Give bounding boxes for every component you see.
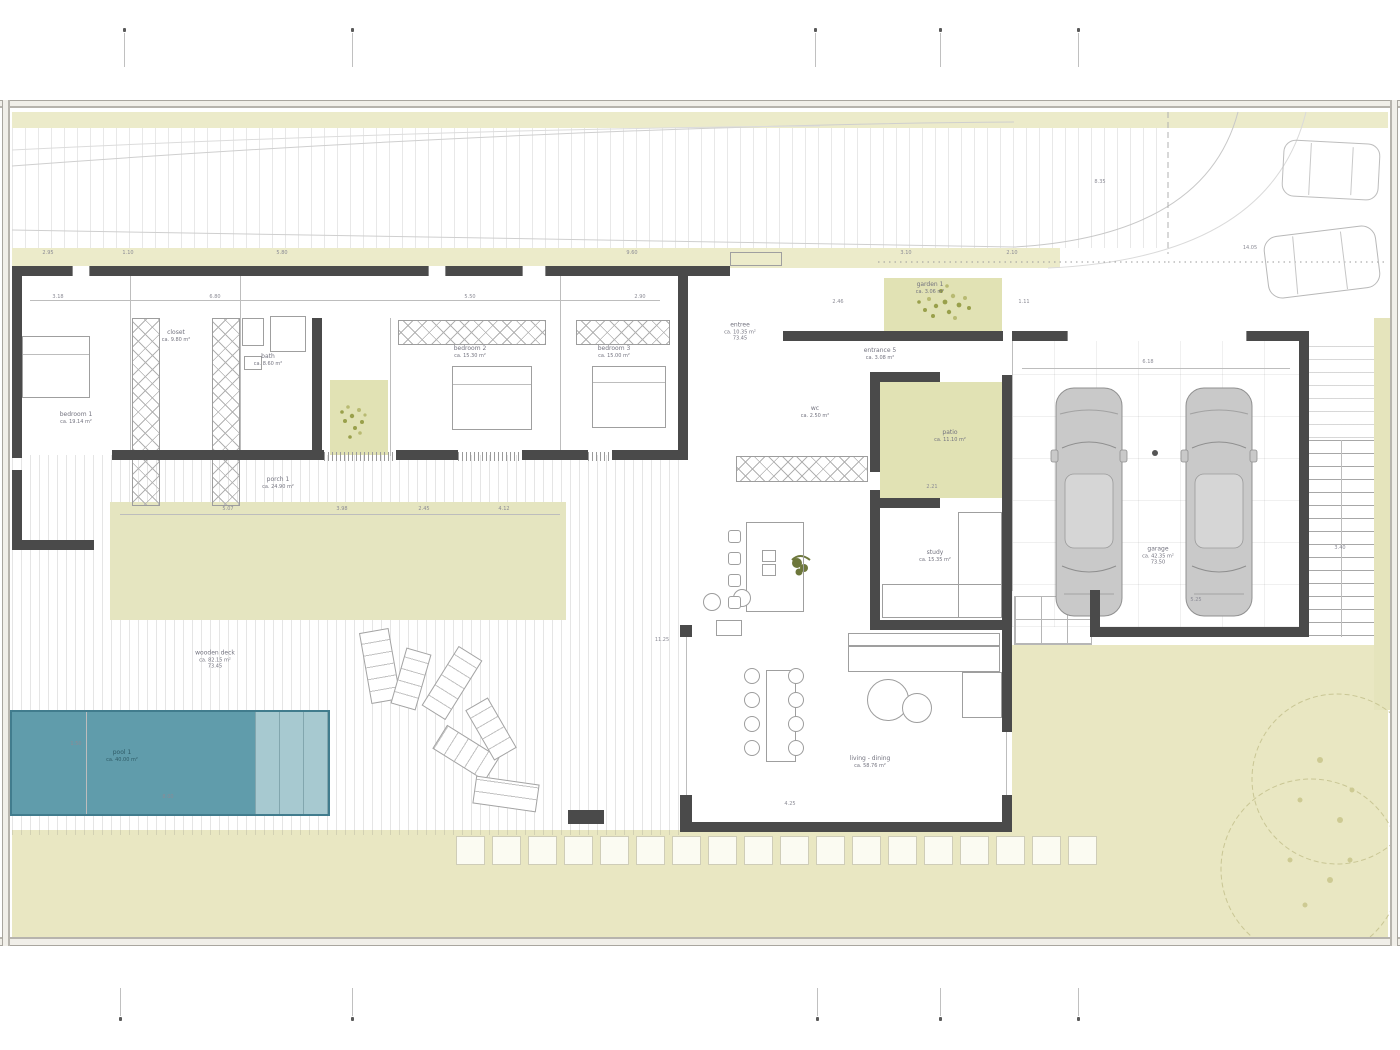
dining-chair bbox=[744, 740, 760, 756]
stepping-stone bbox=[600, 836, 629, 865]
dimension-text: 1.11 bbox=[1018, 299, 1029, 305]
dining-chair bbox=[788, 716, 804, 732]
stepping-stone bbox=[672, 836, 701, 865]
round-furniture bbox=[902, 693, 932, 723]
stepping-stone bbox=[816, 836, 845, 865]
dimension-text: 11.25 bbox=[655, 637, 669, 643]
cabinet-unit bbox=[736, 456, 868, 482]
room-label-closet: closetca. 9.80 m² bbox=[162, 329, 191, 343]
sheet-border-right bbox=[1390, 100, 1398, 946]
dimension-text: 3.18 bbox=[52, 294, 63, 300]
room-label-entrance: entrance 5ca. 3.08 m² bbox=[864, 347, 897, 361]
stepping-stone bbox=[852, 836, 881, 865]
stepping-stone bbox=[996, 836, 1025, 865]
room-label-line: ca. 9.80 m² bbox=[162, 337, 191, 344]
dining-chair bbox=[788, 692, 804, 708]
window-sill bbox=[458, 452, 522, 461]
survey-marker-dot bbox=[123, 28, 126, 32]
partition-line bbox=[30, 300, 660, 301]
wall-segment bbox=[870, 620, 1012, 630]
furniture-outline bbox=[962, 672, 1002, 718]
green-strip-east bbox=[1374, 318, 1390, 710]
survey-marker-dot bbox=[351, 1017, 354, 1021]
wall-segment bbox=[12, 266, 22, 458]
dimension-text: 5.80 bbox=[276, 250, 287, 256]
room-label-line: ca. 15.00 m² bbox=[598, 353, 631, 360]
room-label-line: bedroom 2 bbox=[454, 345, 487, 352]
wall-segment bbox=[1090, 590, 1100, 635]
dining-chair bbox=[788, 740, 804, 756]
lawn-east bbox=[1012, 645, 1388, 830]
partition-line bbox=[120, 514, 560, 515]
furniture-outline bbox=[452, 366, 532, 430]
survey-marker-stem bbox=[815, 33, 816, 67]
room-label-line: wc bbox=[811, 405, 819, 412]
stepping-stone bbox=[636, 836, 665, 865]
wall-segment bbox=[680, 625, 692, 637]
room-label-line: 73.45 bbox=[195, 664, 235, 671]
survey-marker-stem bbox=[1078, 33, 1079, 67]
survey-marker-dot bbox=[816, 1017, 819, 1021]
room-label-line: ca. 11.10 m² bbox=[934, 437, 966, 444]
dimension-text: 1.50 bbox=[70, 741, 81, 747]
wall-segment bbox=[1299, 331, 1309, 637]
dimension-text: 5.07 bbox=[222, 506, 233, 512]
sheet-border-left bbox=[2, 100, 10, 946]
sheet-border-top bbox=[0, 100, 1400, 108]
room-label-line: 73.50 bbox=[1142, 560, 1174, 567]
furniture-outline bbox=[730, 252, 782, 266]
room-label-study: studyca. 15.35 m² bbox=[919, 549, 951, 563]
partition-line bbox=[86, 712, 87, 814]
furniture-outline bbox=[592, 366, 666, 428]
partition-line bbox=[1341, 440, 1342, 637]
room-label-line: ca. 2.50 m² bbox=[801, 413, 830, 420]
partition-line bbox=[130, 276, 131, 450]
survey-marker-stem bbox=[352, 33, 353, 67]
partition-line bbox=[560, 276, 561, 450]
dimension-text: 4.12 bbox=[498, 506, 509, 512]
wall-segment bbox=[1002, 795, 1012, 832]
wall-segment bbox=[396, 450, 458, 460]
terrace-green bbox=[110, 502, 566, 620]
furniture-outline bbox=[848, 633, 1000, 646]
window bbox=[428, 266, 446, 276]
room-label-line: garden 1 bbox=[917, 281, 944, 288]
wall-segment bbox=[1090, 627, 1309, 637]
survey-marker-stem bbox=[940, 33, 941, 67]
survey-marker-dot bbox=[351, 28, 354, 32]
dimension-text: 5.25 bbox=[1190, 597, 1201, 603]
wall-segment bbox=[112, 450, 324, 460]
dimension-text: 6.80 bbox=[209, 294, 220, 300]
room-label-line: ca. 15.35 m² bbox=[919, 557, 951, 564]
bar-stool bbox=[728, 552, 741, 565]
wall-segment bbox=[783, 331, 1003, 341]
dimension-text: 2.45 bbox=[418, 506, 429, 512]
room-label-line: ca. 40.00 m² bbox=[106, 757, 138, 764]
site-plan: bedroom 1ca. 19.14 m²closetca. 9.80 m²ba… bbox=[0, 0, 1400, 1050]
stepping-stone bbox=[744, 836, 773, 865]
wall-segment bbox=[12, 540, 94, 550]
room-label-patio: patioca. 11.10 m² bbox=[934, 429, 966, 443]
furniture-outline bbox=[882, 584, 1002, 618]
cabinet-unit bbox=[398, 320, 546, 345]
stepping-stone bbox=[960, 836, 989, 865]
dimension-text: 2.21 bbox=[926, 484, 937, 490]
swimming-pool bbox=[10, 710, 330, 816]
room-label-line: bedroom 3 bbox=[598, 345, 631, 352]
dimension-text: 3.98 bbox=[336, 506, 347, 512]
room-label-porch: porch 1ca. 24.90 m² bbox=[262, 476, 294, 490]
wall-segment bbox=[312, 318, 322, 458]
survey-marker-dot bbox=[939, 1017, 942, 1021]
room-label-line: porch 1 bbox=[267, 476, 290, 483]
furniture-outline bbox=[242, 318, 264, 346]
cabinet-unit bbox=[212, 318, 240, 506]
garage-floor bbox=[1012, 341, 1299, 627]
dimension-text: 2.10 bbox=[1006, 250, 1017, 256]
side-steps-upper bbox=[1309, 346, 1374, 440]
dining-chair bbox=[744, 668, 760, 684]
room-label-line: study bbox=[927, 549, 944, 556]
dimension-text: 6.18 bbox=[1142, 359, 1153, 365]
survey-marker-dot bbox=[1077, 1017, 1080, 1021]
furniture-outline bbox=[762, 564, 776, 576]
dimension-text: 9.60 bbox=[626, 250, 637, 256]
dimension-text: 2.46 bbox=[832, 299, 843, 305]
sheet-border-bottom bbox=[0, 937, 1400, 946]
wall-segment bbox=[546, 266, 730, 276]
partition-line bbox=[1022, 368, 1290, 369]
room-label-line: bath bbox=[261, 353, 275, 360]
dining-chair bbox=[744, 716, 760, 732]
survey-marker-dot bbox=[119, 1017, 122, 1021]
room-label-line: closet bbox=[167, 329, 185, 336]
room-label-line: ca. 3.08 m² bbox=[864, 355, 897, 362]
stepping-stone bbox=[456, 836, 485, 865]
furniture-outline bbox=[848, 646, 1000, 672]
dining-chair bbox=[788, 668, 804, 684]
room-label-line: ca. 58.76 m² bbox=[850, 763, 891, 770]
furniture-outline bbox=[270, 316, 306, 352]
stepping-stone bbox=[888, 836, 917, 865]
wall-segment bbox=[612, 450, 688, 460]
stepping-stone bbox=[492, 836, 521, 865]
room-label-line: garage bbox=[1147, 546, 1168, 553]
room-label-bath: bathca. 8.60 m² bbox=[254, 353, 283, 367]
room-label-deck: wooden deckca. 82.15 m²73.45 bbox=[195, 650, 235, 671]
room-label-line: ca. 19.14 m² bbox=[60, 419, 93, 426]
wall-segment bbox=[568, 810, 604, 824]
room-label-line: entrance 5 bbox=[864, 347, 897, 354]
window-sill bbox=[324, 452, 396, 461]
room-label-line: wooden deck bbox=[195, 650, 235, 657]
room-label-line: living - dining bbox=[850, 755, 891, 762]
wall-segment bbox=[870, 490, 880, 630]
room-label-entree: entreeca. 10.35 m²73.45 bbox=[724, 322, 756, 343]
drawing-sheet: bedroom 1ca. 19.14 m²closetca. 9.80 m²ba… bbox=[0, 0, 1400, 1050]
dimension-text: 3.40 bbox=[1334, 545, 1345, 551]
wall-segment bbox=[678, 276, 688, 460]
dimension-text: 8.00 bbox=[162, 794, 173, 800]
atrium-green bbox=[330, 380, 388, 455]
room-label-line: pool 1 bbox=[113, 749, 132, 756]
survey-marker-stem bbox=[120, 988, 121, 1016]
furniture-outline bbox=[716, 620, 742, 636]
room-label-bedroom-3: bedroom 3ca. 15.00 m² bbox=[598, 345, 631, 359]
stepping-stone bbox=[528, 836, 557, 865]
stepping-stone bbox=[924, 836, 953, 865]
furniture-outline bbox=[22, 336, 90, 398]
room-label-line: ca. 15.30 m² bbox=[454, 353, 487, 360]
stepping-stone bbox=[1068, 836, 1097, 865]
window-sill bbox=[588, 452, 612, 461]
driveway-paving bbox=[12, 128, 1162, 248]
partition-line bbox=[1012, 341, 1013, 591]
survey-marker-stem bbox=[124, 33, 125, 67]
room-label-line: entree bbox=[730, 322, 750, 329]
survey-marker-dot bbox=[814, 28, 817, 32]
stepping-stone bbox=[708, 836, 737, 865]
window bbox=[1067, 331, 1247, 341]
partition-line bbox=[240, 276, 241, 450]
wall-segment bbox=[522, 450, 588, 460]
wall-segment bbox=[446, 266, 522, 276]
partition-line bbox=[1006, 732, 1007, 796]
partition-line bbox=[390, 318, 391, 456]
survey-marker-stem bbox=[352, 988, 353, 1016]
room-label-line: 73.45 bbox=[724, 336, 756, 343]
wall-segment bbox=[90, 266, 428, 276]
cabinet-unit bbox=[132, 318, 160, 506]
stepping-stone bbox=[1032, 836, 1061, 865]
room-label-line: bedroom 1 bbox=[60, 411, 93, 418]
wall-segment bbox=[870, 372, 880, 472]
entry-steps-grid bbox=[1014, 596, 1092, 645]
survey-marker-dot bbox=[939, 28, 942, 32]
wall-segment bbox=[1002, 375, 1012, 732]
dimension-text: 2.95 bbox=[42, 250, 53, 256]
room-label-wc: wcca. 2.50 m² bbox=[801, 405, 830, 419]
room-label-garden-1: garden 1ca. 3.06 m² bbox=[916, 281, 945, 295]
room-label-line: ca. 24.90 m² bbox=[262, 484, 294, 491]
room-label-living: living - diningca. 58.76 m² bbox=[850, 755, 891, 769]
green-band-top bbox=[12, 112, 1388, 128]
dimension-text: 2.90 bbox=[634, 294, 645, 300]
window bbox=[72, 266, 90, 276]
room-label-bedroom-2: bedroom 2ca. 15.30 m² bbox=[454, 345, 487, 359]
survey-marker-stem bbox=[817, 988, 818, 1016]
dining-chair bbox=[744, 692, 760, 708]
stepping-stone bbox=[780, 836, 809, 865]
bar-stool bbox=[728, 574, 741, 587]
dimension-text: 4.25 bbox=[784, 801, 795, 807]
room-label-line: ca. 8.60 m² bbox=[254, 361, 283, 368]
wall-segment bbox=[870, 372, 940, 382]
survey-marker-stem bbox=[1078, 988, 1079, 1016]
wall-segment bbox=[682, 822, 1012, 832]
room-label-line: ca. 3.06 m² bbox=[916, 289, 945, 296]
round-furniture bbox=[703, 593, 721, 611]
dimension-text: 5.50 bbox=[464, 294, 475, 300]
room-label-garage: garageca. 42.35 m²73.50 bbox=[1142, 546, 1174, 567]
dimension-text: 14.05 bbox=[1243, 245, 1257, 251]
bar-stool bbox=[728, 530, 741, 543]
room-label-bedroom-1: bedroom 1ca. 19.14 m² bbox=[60, 411, 93, 425]
bar-stool bbox=[728, 596, 741, 609]
cabinet-unit bbox=[576, 320, 670, 345]
dimension-text: 3.10 bbox=[900, 250, 911, 256]
dimension-text: 1.10 bbox=[122, 250, 133, 256]
wall-segment bbox=[12, 470, 22, 550]
pool-step-shallow bbox=[255, 712, 328, 814]
wall-segment bbox=[870, 498, 940, 508]
furniture-outline bbox=[762, 550, 776, 562]
survey-marker-dot bbox=[1077, 28, 1080, 32]
window bbox=[522, 266, 546, 276]
wall-segment bbox=[1012, 331, 1067, 341]
dimension-text: 8.35 bbox=[1094, 179, 1105, 185]
room-label-pool: pool 1ca. 40.00 m² bbox=[106, 749, 138, 763]
room-label-line: patio bbox=[942, 429, 957, 436]
survey-marker-stem bbox=[940, 988, 941, 1016]
stepping-stone bbox=[564, 836, 593, 865]
